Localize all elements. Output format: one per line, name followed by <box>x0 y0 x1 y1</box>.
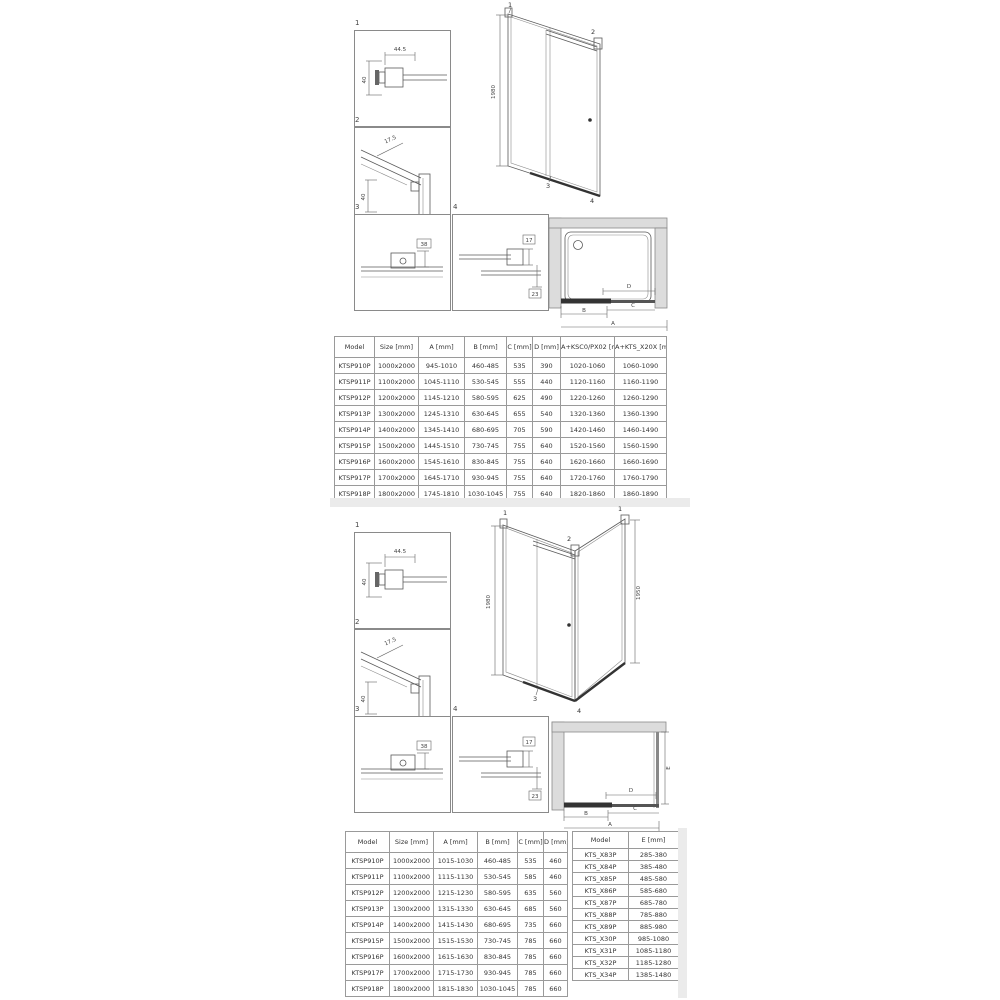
table-cell: 285-380 <box>629 849 679 861</box>
table-cell: 1815-1830 <box>434 981 478 997</box>
table-row: KTSP912P1200x20001215-1230580-595635560 <box>346 885 568 901</box>
spec-sheet-page: 1 44.5 40 2 17.5 40 <box>0 0 1000 1000</box>
roller-rail-detail-drawing: 38 <box>355 717 448 810</box>
plan-view-with-side-wall-drawing: E D B C A <box>548 712 673 834</box>
table-row: KTSP912P1200x20001145-1210580-5956254901… <box>335 390 667 406</box>
table-cell: 1115-1130 <box>434 869 478 885</box>
svg-text:D: D <box>627 284 631 290</box>
table-cell: 1445-1510 <box>419 438 465 454</box>
table-row: KTS_X30P985-1080 <box>573 933 679 945</box>
table-cell: 1320-1360 <box>561 406 615 422</box>
svg-text:1: 1 <box>503 509 507 517</box>
table-cell: 1145-1210 <box>419 390 465 406</box>
table-cell: 440 <box>533 374 561 390</box>
table-row: KTS_X83P285-380 <box>573 849 679 861</box>
svg-text:3: 3 <box>533 695 537 703</box>
table-cell: 460 <box>544 853 568 869</box>
table-row: KTSP915P1500x20001515-1530730-745785660 <box>346 933 568 949</box>
table-cell: 1800x2000 <box>390 981 434 997</box>
table-cell: 555 <box>507 374 533 390</box>
table-cell: 945-1010 <box>419 358 465 374</box>
table-cell: 1200x2000 <box>375 390 419 406</box>
table-cell: 785 <box>518 981 544 997</box>
table-cell: 1500x2000 <box>375 438 419 454</box>
table-cell: 685-780 <box>629 897 679 909</box>
table-cell: 930-945 <box>465 470 507 486</box>
table-cell: 535 <box>518 853 544 869</box>
table-cell: 1760-1790 <box>615 470 667 486</box>
table-cell: KTSP917P <box>346 965 390 981</box>
table-cell: 640 <box>533 438 561 454</box>
table-cell: 1560-1590 <box>615 438 667 454</box>
svg-text:23: 23 <box>532 292 539 298</box>
table-cell: 560 <box>544 885 568 901</box>
detail-number: 1 <box>355 521 359 529</box>
table-cell: 640 <box>533 470 561 486</box>
table-cell: 485-580 <box>629 873 679 885</box>
column-header: C [mm] <box>507 337 533 358</box>
table-row: KTSP918P1800x20001815-18301030-104578566… <box>346 981 568 997</box>
table-cell: KTSP913P <box>346 901 390 917</box>
table-row: KTSP917P1700x20001715-1730930-945785660 <box>346 965 568 981</box>
svg-text:17: 17 <box>526 238 533 244</box>
table-cell: 1600x2000 <box>375 454 419 470</box>
table-cell: 1300x2000 <box>375 406 419 422</box>
svg-text:17.5: 17.5 <box>384 135 398 146</box>
svg-text:44.5: 44.5 <box>394 47 407 53</box>
detail-box-3: 3 38 <box>354 716 451 813</box>
column-header: A+KSC0/PX02 [mm] <box>561 337 615 358</box>
svg-text:3: 3 <box>546 182 550 190</box>
svg-text:40: 40 <box>361 193 367 200</box>
table-cell: 560 <box>544 901 568 917</box>
table-cell: 1385-1480 <box>629 969 679 981</box>
svg-text:B: B <box>582 308 586 314</box>
wall-bracket-detail-drawing: 44.5 40 <box>355 31 448 124</box>
column-header: Size [mm] <box>375 337 419 358</box>
table-cell: 1260-1290 <box>615 390 667 406</box>
detail-number: 3 <box>355 705 359 713</box>
table-row: KTSP914P1400x20001415-1430680-695735660 <box>346 917 568 933</box>
table-cell: 680-695 <box>465 422 507 438</box>
table-cell: 1615-1630 <box>434 949 478 965</box>
svg-text:1980: 1980 <box>486 595 492 609</box>
detail-number: 4 <box>453 705 457 713</box>
table-row: KTSP917P1700x20001645-1710930-9457556401… <box>335 470 667 486</box>
table-cell: 460-485 <box>465 358 507 374</box>
detail-box-2: 2 17.5 40 <box>354 629 451 726</box>
table-cell: KTS_X31P <box>573 945 629 957</box>
table-cell: 1100x2000 <box>390 869 434 885</box>
svg-text:B: B <box>584 811 588 817</box>
table-cell: 530-545 <box>465 374 507 390</box>
svg-text:1980: 1980 <box>491 85 497 99</box>
table-cell: 1600x2000 <box>390 949 434 965</box>
svg-text:17: 17 <box>526 740 533 746</box>
detail-box-2: 2 17.5 40 <box>354 127 451 224</box>
table-cell: 585-680 <box>629 885 679 897</box>
table-cell: 1000x2000 <box>390 853 434 869</box>
bottom-guide-detail-drawing: 17 23 <box>453 215 546 308</box>
table-cell: 530-545 <box>478 869 518 885</box>
detail-box-4: 4 17 23 <box>452 214 549 311</box>
door-with-side-wall-elevation-drawing: 1980 1950 1 1 2 3 4 <box>475 503 675 717</box>
table-row: KTSP916P1600x20001615-1630830-845785660 <box>346 949 568 965</box>
table-row: KTSP910P1000x2000945-1010460-48553539010… <box>335 358 667 374</box>
table-cell: 535 <box>507 358 533 374</box>
column-header: B [mm] <box>465 337 507 358</box>
table-cell: 730-745 <box>465 438 507 454</box>
table-cell: 660 <box>544 949 568 965</box>
table-cell: 830-845 <box>465 454 507 470</box>
table-cell: KTSP912P <box>346 885 390 901</box>
wall-bracket-detail-drawing: 44.5 40 <box>355 533 448 626</box>
corner-profile-detail-drawing: 17.5 40 <box>355 128 448 221</box>
table-cell: 1020-1060 <box>561 358 615 374</box>
table-cell: 830-845 <box>478 949 518 965</box>
table-cell: KTSP911P <box>335 374 375 390</box>
table-cell: 1030-1045 <box>478 981 518 997</box>
table-cell: KTS_X88P <box>573 909 629 921</box>
table-cell: 385-480 <box>629 861 679 873</box>
table-cell: 585 <box>518 869 544 885</box>
table-cell: 755 <box>507 438 533 454</box>
table-cell: 785 <box>518 933 544 949</box>
table-row: KTS_X89P885-980 <box>573 921 679 933</box>
svg-text:40: 40 <box>362 76 368 83</box>
table-row: KTSP915P1500x20001445-1510730-7457556401… <box>335 438 667 454</box>
table-cell: 660 <box>544 917 568 933</box>
column-header: E [mm] <box>629 832 679 849</box>
door-elevation-drawing: 1980 1 2 3 4 <box>478 0 668 205</box>
table-cell: 1400x2000 <box>375 422 419 438</box>
table-row: KTSP911P1100x20001115-1130530-545585460 <box>346 869 568 885</box>
table-cell: 1360-1390 <box>615 406 667 422</box>
table-cell: 705 <box>507 422 533 438</box>
table-cell: KTSP911P <box>346 869 390 885</box>
table-cell: 1545-1610 <box>419 454 465 470</box>
svg-text:40: 40 <box>361 695 367 702</box>
table-cell: 1500x2000 <box>390 933 434 949</box>
table-cell: 1415-1430 <box>434 917 478 933</box>
table-cell: 1300x2000 <box>390 901 434 917</box>
table-cell: 1200x2000 <box>390 885 434 901</box>
table-cell: 1215-1230 <box>434 885 478 901</box>
table-cell: 390 <box>533 358 561 374</box>
table-cell: 490 <box>533 390 561 406</box>
column-header: D [mm] <box>533 337 561 358</box>
detail-number: 3 <box>355 203 359 211</box>
svg-text:1950: 1950 <box>636 586 642 600</box>
table-cell: 1120-1160 <box>561 374 615 390</box>
table-row: KTS_X34P1385-1480 <box>573 969 679 981</box>
table-cell: 1085-1180 <box>629 945 679 957</box>
table-cell: 1160-1190 <box>615 374 667 390</box>
table-cell: 785-880 <box>629 909 679 921</box>
svg-text:1: 1 <box>508 1 512 9</box>
column-header: A [mm] <box>434 832 478 853</box>
corner-profile-detail-drawing: 17.5 40 <box>355 630 448 723</box>
table-cell: KTS_X84P <box>573 861 629 873</box>
table-header-row: ModelE [mm] <box>573 832 679 849</box>
table-cell: 785 <box>518 965 544 981</box>
table-cell: KTSP918P <box>346 981 390 997</box>
table-cell: 755 <box>507 454 533 470</box>
svg-text:C: C <box>633 806 637 812</box>
detail-box-1: 1 44.5 40 <box>354 30 451 127</box>
table-cell: 580-595 <box>478 885 518 901</box>
plan-view-drawing: D B C A <box>545 206 670 334</box>
column-header: Model <box>335 337 375 358</box>
table-row: KTS_X88P785-880 <box>573 909 679 921</box>
table-cell: KTSP913P <box>335 406 375 422</box>
side-wall-spec-table: ModelE [mm]KTS_X83P285-380KTS_X84P385-48… <box>572 831 679 981</box>
table-cell: 785 <box>518 949 544 965</box>
table-cell: 1420-1460 <box>561 422 615 438</box>
table-cell: 1645-1710 <box>419 470 465 486</box>
table-cell: KTSP910P <box>346 853 390 869</box>
svg-text:2: 2 <box>567 535 571 543</box>
table-cell: 630-645 <box>465 406 507 422</box>
table-cell: 1520-1560 <box>561 438 615 454</box>
table-cell: 635 <box>518 885 544 901</box>
table-cell: 660 <box>544 933 568 949</box>
table-cell: 1015-1030 <box>434 853 478 869</box>
table-cell: 1700x2000 <box>375 470 419 486</box>
roller-rail-detail-drawing: 38 <box>355 215 448 308</box>
table-cell: 1715-1730 <box>434 965 478 981</box>
table-cell: KTS_X86P <box>573 885 629 897</box>
table-cell: 640 <box>533 454 561 470</box>
door-spec-table: ModelSize [mm]A [mm]B [mm]C [mm]D [mm]A+… <box>334 336 667 502</box>
table-cell: 590 <box>533 422 561 438</box>
table-cell: 460 <box>544 869 568 885</box>
table-cell: 1515-1530 <box>434 933 478 949</box>
table-cell: 1220-1260 <box>561 390 615 406</box>
table-cell: 730-745 <box>478 933 518 949</box>
detail-number: 2 <box>355 116 359 124</box>
detail-number: 1 <box>355 19 359 27</box>
table-row: KTSP914P1400x20001345-1410680-6957055901… <box>335 422 667 438</box>
column-header: A+KTS_X20X [mm] <box>615 337 667 358</box>
detail-box-3: 3 38 <box>354 214 451 311</box>
column-header: B [mm] <box>478 832 518 853</box>
table-cell: 655 <box>507 406 533 422</box>
svg-text:D: D <box>629 788 633 794</box>
table-cell: 1720-1760 <box>561 470 615 486</box>
table-cell: 1315-1330 <box>434 901 478 917</box>
table-cell: 885-980 <box>629 921 679 933</box>
table-cell: KTSP916P <box>346 949 390 965</box>
table-header-row: ModelSize [mm]A [mm]B [mm]C [mm]D [mm]A+… <box>335 337 667 358</box>
svg-text:C: C <box>631 303 635 309</box>
table-cell: 755 <box>507 470 533 486</box>
svg-text:38: 38 <box>421 242 428 248</box>
table-row: KTS_X86P585-680 <box>573 885 679 897</box>
table-cell: 1045-1110 <box>419 374 465 390</box>
svg-text:38: 38 <box>421 744 428 750</box>
table-cell: 460-485 <box>478 853 518 869</box>
page-edge-strip <box>678 828 687 998</box>
table-cell: 1460-1490 <box>615 422 667 438</box>
table-cell: 1620-1660 <box>561 454 615 470</box>
table-cell: KTS_X34P <box>573 969 629 981</box>
door-spec-table: ModelSize [mm]A [mm]B [mm]C [mm]D [mm]KT… <box>345 831 568 997</box>
svg-text:40: 40 <box>362 578 368 585</box>
detail-number: 4 <box>453 203 457 211</box>
table-cell: 680-695 <box>478 917 518 933</box>
table-row: KTSP916P1600x20001545-1610830-8457556401… <box>335 454 667 470</box>
column-header: Model <box>346 832 390 853</box>
table-cell: KTSP914P <box>346 917 390 933</box>
column-header: D [mm] <box>544 832 568 853</box>
table-cell: 540 <box>533 406 561 422</box>
svg-text:23: 23 <box>532 794 539 800</box>
table-cell: 1245-1310 <box>419 406 465 422</box>
svg-text:A: A <box>611 321 615 327</box>
bottom-guide-detail-drawing: 17 23 <box>453 717 546 810</box>
table-cell: KTSP915P <box>335 438 375 454</box>
table-cell: 1345-1410 <box>419 422 465 438</box>
table-cell: KTS_X87P <box>573 897 629 909</box>
table-cell: 1700x2000 <box>390 965 434 981</box>
column-header: Model <box>573 832 629 849</box>
table-cell: 930-945 <box>478 965 518 981</box>
table-cell: KTS_X30P <box>573 933 629 945</box>
table-cell: 625 <box>507 390 533 406</box>
svg-text:1: 1 <box>618 505 622 513</box>
table-cell: 660 <box>544 965 568 981</box>
table-cell: 735 <box>518 917 544 933</box>
table-row: KTSP913P1300x20001245-1310630-6456555401… <box>335 406 667 422</box>
svg-text:A: A <box>608 822 612 828</box>
table-cell: KTSP916P <box>335 454 375 470</box>
table-row: KTS_X32P1185-1280 <box>573 957 679 969</box>
table-cell: 1185-1280 <box>629 957 679 969</box>
svg-text:E: E <box>666 766 672 770</box>
table-header-row: ModelSize [mm]A [mm]B [mm]C [mm]D [mm] <box>346 832 568 853</box>
table-row: KTSP913P1300x20001315-1330630-645685560 <box>346 901 568 917</box>
table-cell: 580-595 <box>465 390 507 406</box>
svg-text:17.5: 17.5 <box>384 637 398 648</box>
table-cell: 1660-1690 <box>615 454 667 470</box>
detail-box-4: 4 17 23 <box>452 716 549 813</box>
table-cell: 1100x2000 <box>375 374 419 390</box>
detail-box-1: 1 44.5 40 <box>354 532 451 629</box>
detail-number: 2 <box>355 618 359 626</box>
column-header: Size [mm] <box>390 832 434 853</box>
table-cell: 1400x2000 <box>390 917 434 933</box>
table-row: KTS_X87P685-780 <box>573 897 679 909</box>
table-cell: KTSP915P <box>346 933 390 949</box>
table-cell: 660 <box>544 981 568 997</box>
table-cell: 685 <box>518 901 544 917</box>
table-cell: KTS_X83P <box>573 849 629 861</box>
table-cell: KTS_X32P <box>573 957 629 969</box>
table-cell: KTS_X89P <box>573 921 629 933</box>
table-row: KTS_X31P1085-1180 <box>573 945 679 957</box>
table-cell: KTSP917P <box>335 470 375 486</box>
table-row: KTSP911P1100x20001045-1110530-5455554401… <box>335 374 667 390</box>
table-cell: 1000x2000 <box>375 358 419 374</box>
table-cell: KTSP912P <box>335 390 375 406</box>
table-cell: KTSP914P <box>335 422 375 438</box>
table-cell: 1060-1090 <box>615 358 667 374</box>
table-row: KTS_X84P385-480 <box>573 861 679 873</box>
table-cell: KTSP910P <box>335 358 375 374</box>
table-row: KTS_X85P485-580 <box>573 873 679 885</box>
column-header: C [mm] <box>518 832 544 853</box>
table-cell: 630-645 <box>478 901 518 917</box>
svg-text:2: 2 <box>591 28 595 36</box>
column-header: A [mm] <box>419 337 465 358</box>
table-cell: KTS_X85P <box>573 873 629 885</box>
svg-text:4: 4 <box>590 197 594 205</box>
svg-text:44.5: 44.5 <box>394 549 407 555</box>
table-cell: 985-1080 <box>629 933 679 945</box>
table-row: KTSP910P1000x20001015-1030460-485535460 <box>346 853 568 869</box>
